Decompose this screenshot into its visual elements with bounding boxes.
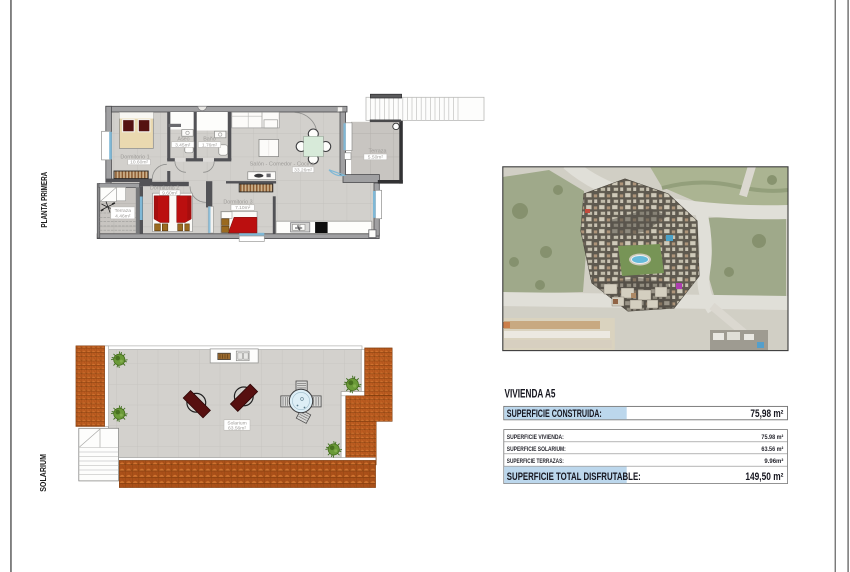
svg-text:75.98 m²: 75.98 m²	[761, 434, 784, 441]
svg-text:7.10m²: 7.10m²	[235, 205, 251, 211]
svg-text:75,98 m²: 75,98 m²	[750, 408, 783, 420]
svg-text:9.60m²: 9.60m²	[162, 190, 178, 196]
svg-text:63.56 m²: 63.56 m²	[761, 446, 784, 453]
svg-text:Terraza: Terraza	[115, 208, 132, 214]
svg-text:SUPERFICIE SOLARIUM:: SUPERFICIE SOLARIUM:	[507, 446, 566, 453]
svg-text:33.26m²: 33.26m²	[294, 167, 312, 173]
svg-text:PLANTA PRIMERA: PLANTA PRIMERA	[39, 172, 49, 228]
svg-text:Salón - Comedor - Cocina: Salón - Comedor - Cocina	[250, 161, 316, 167]
svg-text:SUPERFICIE TERRAZAS:: SUPERFICIE TERRAZAS:	[507, 458, 564, 465]
svg-text:VIVIENDA A5: VIVIENDA A5	[505, 389, 556, 401]
svg-text:10.60m²: 10.60m²	[130, 160, 148, 166]
svg-text:149,50 m²: 149,50 m²	[745, 471, 783, 483]
svg-text:Solarium: Solarium	[227, 420, 246, 426]
svg-text:Terraza: Terraza	[369, 149, 387, 155]
svg-text:SUPERFICIE VIVIENDA:: SUPERFICIE VIVIENDA:	[507, 434, 564, 441]
svg-text:3.45m²: 3.45m²	[175, 142, 191, 148]
svg-text:5.50m²: 5.50m²	[368, 155, 384, 161]
svg-text:SUPERFICIE TOTAL DISFRUTABLE:: SUPERFICIE TOTAL DISFRUTABLE:	[507, 471, 641, 483]
svg-text:1.76m²: 1.76m²	[202, 142, 218, 148]
svg-text:9.96m²: 9.96m²	[764, 458, 784, 465]
svg-text:SUPERFICIE CONSTRUIDA:: SUPERFICIE CONSTRUIDA:	[507, 408, 602, 420]
svg-text:63.56m²: 63.56m²	[228, 425, 246, 431]
svg-text:SOLARIUM: SOLARIUM	[38, 454, 48, 492]
svg-text:4.46m²: 4.46m²	[115, 214, 131, 220]
